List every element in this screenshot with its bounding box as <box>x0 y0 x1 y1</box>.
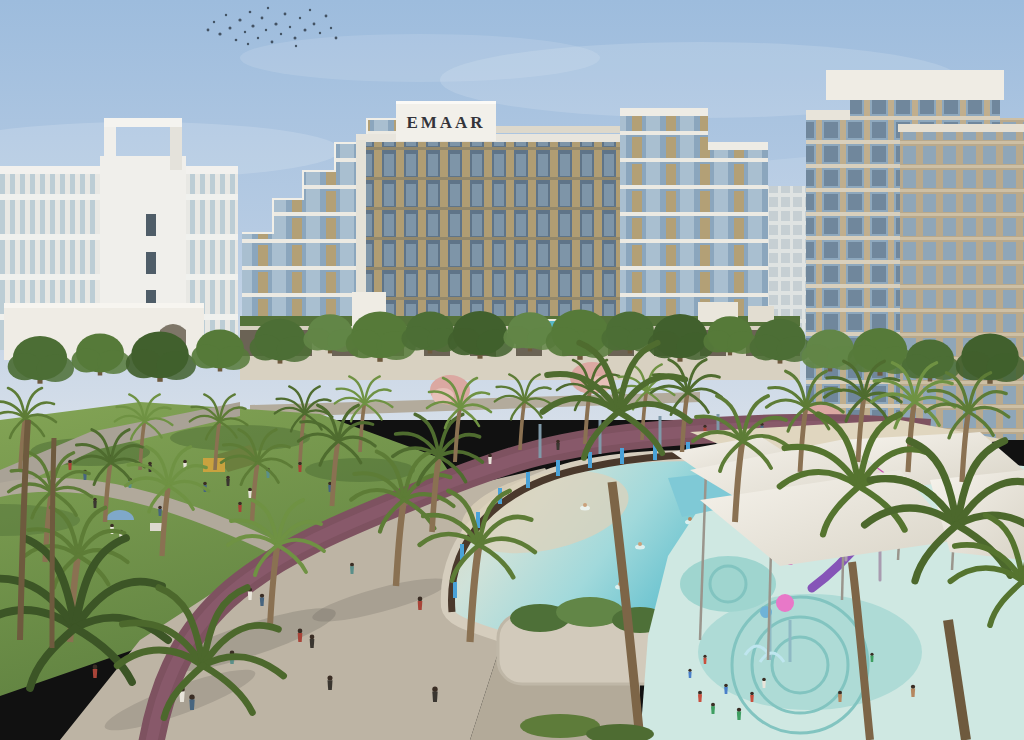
building-center-main <box>356 126 642 332</box>
building-center-right <box>620 108 768 338</box>
building-right-tower <box>806 70 1024 440</box>
emaar-sign-text: EMAAR <box>406 113 485 132</box>
render-canvas: EMAAR <box>0 0 1024 740</box>
scene-svg: EMAAR <box>0 0 1024 740</box>
emaar-sign: EMAAR <box>396 101 496 141</box>
